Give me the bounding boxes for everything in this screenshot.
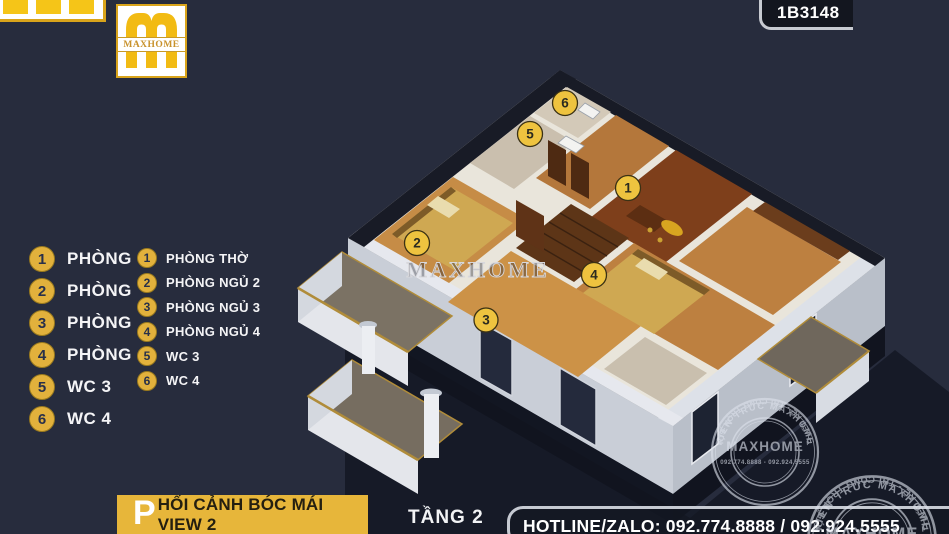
floor-reflection bbox=[345, 318, 949, 534]
legend-number-badge: 4 bbox=[137, 322, 157, 342]
door bbox=[480, 322, 512, 396]
room-wc4-floor bbox=[534, 87, 611, 138]
legend-number-badge: 6 bbox=[29, 406, 55, 432]
door-panel bbox=[548, 140, 566, 186]
balcony-floor bbox=[298, 252, 452, 352]
door bbox=[560, 368, 596, 446]
stamp-1 bbox=[712, 397, 818, 505]
marker-1: 1 bbox=[616, 176, 641, 201]
legend-row: 6WC 4 bbox=[29, 406, 132, 432]
marker-3: 3 bbox=[474, 308, 498, 332]
altar-mat bbox=[659, 217, 686, 239]
legend-number-badge: 3 bbox=[137, 297, 157, 317]
room-bedroom3-floor bbox=[448, 251, 641, 377]
altar-item bbox=[648, 228, 653, 233]
balcony-railing-side bbox=[298, 252, 342, 322]
bed-room4 bbox=[583, 249, 710, 334]
svg-text:2: 2 bbox=[413, 236, 421, 251]
legend-number-badge: 2 bbox=[29, 278, 55, 304]
floor-label: TẦNG 2 bbox=[408, 507, 484, 529]
balcony-floor bbox=[758, 317, 869, 393]
hallway-floor bbox=[536, 115, 669, 209]
bathroom-vanity bbox=[558, 136, 584, 153]
floor-plate bbox=[348, 70, 885, 426]
svg-text:5: 5 bbox=[526, 127, 534, 142]
legend-label: WC 4 bbox=[166, 373, 200, 388]
marker-6: 6 bbox=[553, 91, 578, 116]
legend-label: PHÒNG bbox=[67, 281, 132, 301]
room-markers: 1 2 3 4 5 6 bbox=[405, 91, 641, 333]
altar-table bbox=[626, 205, 668, 232]
logo-leg bbox=[3, 0, 28, 14]
legend-number-badge: 5 bbox=[29, 374, 55, 400]
legend-label: PHÒNG THỜ bbox=[166, 251, 248, 266]
watermark-text: MAXHOME bbox=[406, 257, 549, 282]
staircase bbox=[516, 204, 629, 282]
logo-leg bbox=[69, 0, 94, 14]
marker-5: 5 bbox=[518, 122, 543, 147]
room-wc3-floor bbox=[470, 116, 574, 189]
furniture bbox=[392, 103, 850, 334]
legend-row: 4PHÒNG bbox=[29, 342, 132, 368]
room-bedroom4-upper-floor bbox=[679, 207, 841, 315]
legend-row: 3PHÒNG NGỦ 3 bbox=[137, 297, 260, 317]
legend-row: 4PHÒNG NGỦ 4 bbox=[137, 322, 260, 342]
room-bedroom2-floor bbox=[374, 177, 528, 283]
hotline-text: HOTLINE/ZALO: 092.774.8888 / 092.924.555… bbox=[523, 516, 900, 534]
pillar bbox=[362, 326, 375, 374]
wall-cap-front bbox=[348, 230, 683, 426]
gold-trim bbox=[816, 351, 869, 393]
cut-wall-top-right bbox=[550, 70, 885, 266]
logo-banner: MAXHOME bbox=[118, 37, 185, 52]
legend-label: PHÒNG NGỦ 4 bbox=[166, 324, 260, 339]
balcony-railing bbox=[816, 351, 869, 423]
legend-label: WC 4 bbox=[67, 409, 112, 429]
view-title-text: HỐI CẢNH BÓC MÁI VIEW 2 bbox=[158, 495, 368, 534]
legend-label: PHÒNG bbox=[67, 345, 132, 365]
svg-text:6: 6 bbox=[561, 96, 569, 111]
room-bedroom4-floor bbox=[576, 243, 775, 370]
lower-floor-shadow-right bbox=[673, 326, 885, 524]
pillar-cap bbox=[420, 389, 442, 398]
hotline-bar: HOTLINE/ZALO: 092.774.8888 / 092.924.555… bbox=[507, 506, 949, 534]
legend-number-badge: 6 bbox=[137, 371, 157, 391]
legend-row: 3PHÒNG bbox=[29, 310, 132, 336]
cut-wall-top-left bbox=[348, 70, 576, 247]
legend-number-badge: 5 bbox=[137, 346, 157, 366]
door-panel bbox=[571, 153, 589, 199]
toilet bbox=[549, 160, 563, 170]
svg-text:1: 1 bbox=[624, 181, 632, 196]
legend-row: 1PHÒNG bbox=[29, 246, 132, 272]
gold-trim bbox=[298, 288, 408, 352]
bed-pillows bbox=[635, 258, 668, 280]
legend-row: 5WC 3 bbox=[137, 346, 260, 366]
legend-label: PHÒNG bbox=[67, 313, 132, 333]
legend-number-badge: 2 bbox=[137, 273, 157, 293]
bathroom-fixture bbox=[578, 103, 600, 119]
pillar bbox=[424, 394, 439, 458]
legend-number-badge: 1 bbox=[29, 246, 55, 272]
legend-label: PHÒNG NGỦ 3 bbox=[166, 300, 260, 315]
balconies bbox=[298, 252, 869, 494]
window bbox=[790, 314, 816, 386]
room-worship-floor bbox=[590, 150, 752, 262]
facade-windows bbox=[480, 314, 816, 464]
altar-item bbox=[658, 238, 663, 243]
view-title-initial: P bbox=[133, 496, 156, 530]
legend-row: 1PHÒNG THỜ bbox=[137, 248, 260, 268]
presentation-slide: MAXHOME 1B3148 1PHÒNG 2PHÒNG 3PHÒNG 4PHÒ… bbox=[0, 0, 949, 534]
logo-leg bbox=[36, 0, 61, 14]
brand-logo-partial bbox=[0, 0, 106, 22]
legend-label: PHÒNG NGỦ 2 bbox=[166, 275, 260, 290]
pillar-cap bbox=[359, 321, 377, 329]
wardrobe bbox=[753, 202, 850, 260]
facade-left bbox=[348, 238, 673, 494]
marker-4: 4 bbox=[582, 263, 607, 288]
brand-logo: MAXHOME bbox=[116, 4, 187, 78]
legend-primary: 1PHÒNG 2PHÒNG 3PHÒNG 4PHÒNG 5WC 3 6WC 4 bbox=[29, 246, 132, 438]
marker-2: 2 bbox=[405, 231, 430, 256]
legend-number-badge: 1 bbox=[137, 248, 157, 268]
bed-headboard bbox=[632, 249, 710, 295]
legend-row: 2PHÒNG bbox=[29, 278, 132, 304]
lower-floor-shadow-left bbox=[348, 306, 673, 524]
legend-label: WC 3 bbox=[166, 349, 200, 364]
svg-text:4: 4 bbox=[590, 268, 598, 283]
legend-number-badge: 3 bbox=[29, 310, 55, 336]
window bbox=[692, 392, 718, 464]
room-corner-bath-floor bbox=[604, 337, 707, 405]
legend-number-badge: 4 bbox=[29, 342, 55, 368]
gold-trim bbox=[308, 396, 418, 460]
legend-label: WC 3 bbox=[67, 377, 112, 397]
svg-text:3: 3 bbox=[482, 313, 490, 328]
legend-secondary: 1PHÒNG THỜ 2PHÒNG NGỦ 2 3PHÒNG NGỦ 3 4PH… bbox=[137, 248, 260, 396]
balcony-railing bbox=[298, 288, 408, 386]
wardrobe bbox=[516, 200, 544, 252]
legend-row: 6WC 4 bbox=[137, 371, 260, 391]
legend-label: PHÒNG bbox=[67, 249, 132, 269]
bed-headboard bbox=[392, 187, 456, 238]
balcony-railing-side bbox=[308, 360, 352, 430]
bed-pillows bbox=[427, 196, 460, 218]
view-title-box: P HỐI CẢNH BÓC MÁI VIEW 2 bbox=[117, 495, 368, 534]
project-code-badge: 1B3148 bbox=[759, 0, 853, 30]
wall-cap-right bbox=[658, 250, 885, 426]
facade-right bbox=[673, 258, 885, 494]
balcony-floor bbox=[308, 360, 462, 460]
bed-room2 bbox=[392, 187, 513, 270]
legend-row: 2PHÒNG NGỦ 2 bbox=[137, 273, 260, 293]
balcony-railing bbox=[308, 396, 418, 494]
legend-row: 5WC 3 bbox=[29, 374, 132, 400]
